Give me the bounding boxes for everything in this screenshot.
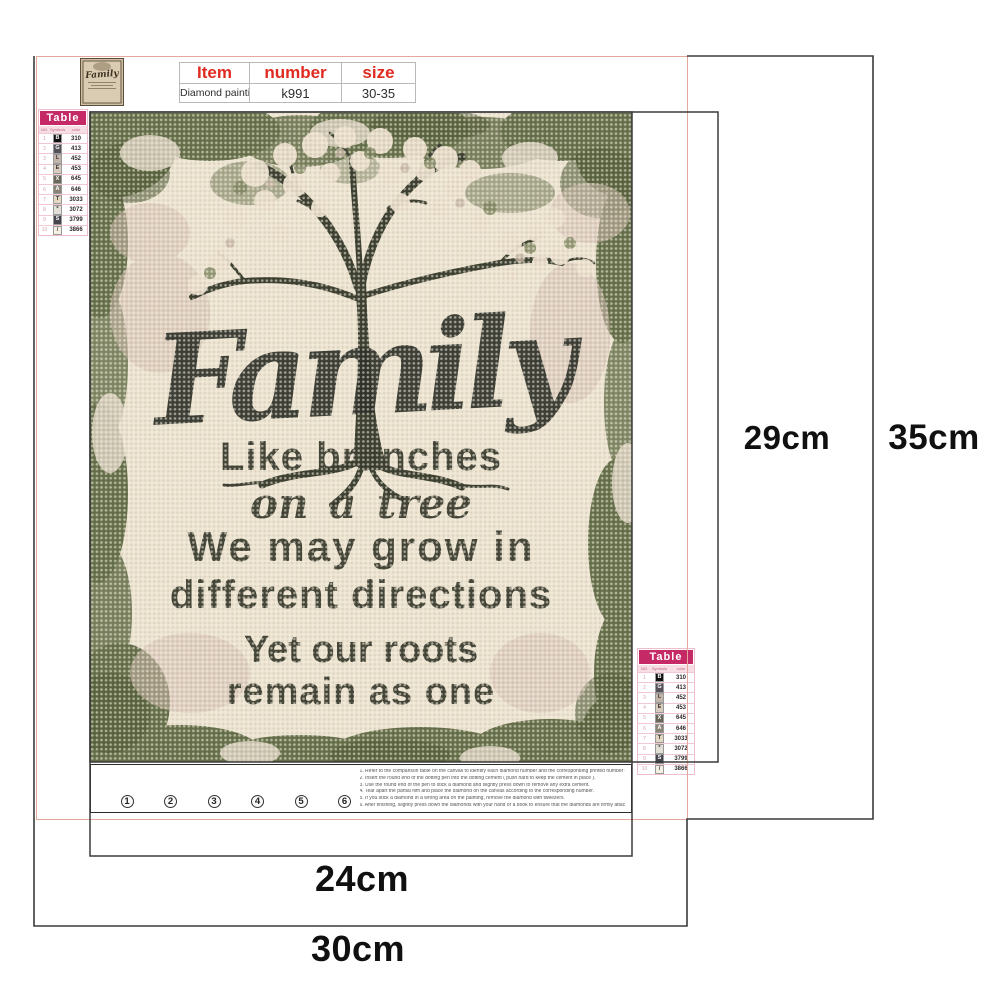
spec-col-item: Item [180, 63, 250, 84]
dmc-code: 310 [65, 136, 87, 142]
col-symbols: Symbols [651, 665, 668, 672]
color-table-right: Table NO. Symbols color 1 B 310 2 G 413 [637, 648, 695, 775]
family-logo-thumbnail: Family [80, 58, 124, 106]
dmc-code: 453 [65, 166, 87, 172]
color-table-row: 3 L 452 [39, 153, 87, 163]
symbol-cell: E [651, 703, 668, 713]
dmc-code: 646 [668, 726, 694, 732]
dmc-code: 645 [65, 176, 87, 182]
row-number: 5 [638, 715, 651, 721]
color-table-row: 8 * 3072 [39, 204, 87, 214]
dmc-code: 3799 [668, 756, 694, 762]
symbol-swatch: / [53, 226, 63, 236]
color-table-row: 2 G 413 [638, 682, 694, 692]
step-photo: 6 [310, 767, 352, 809]
symbol-cell: L [651, 693, 668, 703]
step-photo: 2 [136, 767, 178, 809]
instruction-line: 2. Insert the round end of the dotting p… [360, 776, 626, 781]
color-table-rows: 1 B 310 2 G 413 3 L 452 4 [39, 133, 87, 235]
color-table-row: 3 L 452 [638, 692, 694, 702]
dmc-code: 453 [668, 705, 694, 711]
step-photo: 5 [267, 767, 309, 809]
symbol-swatch: L [53, 154, 63, 164]
symbol-swatch: * [53, 205, 63, 215]
symbol-cell: * [651, 744, 668, 754]
symbol-swatch: A [655, 724, 665, 734]
logo-title: Family [81, 69, 124, 82]
symbol-swatch: X [53, 175, 63, 185]
logo-decor-line [91, 85, 113, 87]
color-table-row: 5 X 645 [39, 174, 87, 184]
color-table-row: 2 G 413 [39, 143, 87, 153]
symbol-swatch: L [655, 693, 665, 703]
row-number: 8 [39, 207, 50, 213]
row-number: 7 [638, 736, 651, 742]
dmc-code: 3072 [65, 207, 87, 213]
row-number: 4 [638, 705, 651, 711]
dmc-code: 646 [65, 187, 87, 193]
step-number-badge: 2 [164, 795, 177, 808]
product-sheet: Family Item number size Diamond painting… [0, 0, 1000, 1000]
symbol-cell: X [651, 714, 668, 724]
dmc-code: 413 [65, 146, 87, 152]
spec-col-number: number [250, 63, 342, 84]
color-table-row: 1 B 310 [638, 672, 694, 682]
instruction-line: 4. Tear apart the partial film and place… [360, 789, 626, 794]
symbol-cell: A [50, 185, 65, 195]
symbol-swatch: X [655, 714, 665, 724]
row-number: 6 [638, 726, 651, 732]
row-number: 2 [39, 146, 50, 152]
outer-width-label: 30cm [298, 928, 418, 970]
canvas-line-3: We may grow in [90, 523, 632, 571]
canvas-title: Family [90, 295, 632, 448]
color-table-row: 5 X 645 [638, 713, 694, 723]
dmc-code: 413 [668, 685, 694, 691]
inner-width-label: 24cm [302, 858, 422, 900]
dmc-code: 452 [65, 156, 87, 162]
symbol-swatch: T [53, 195, 63, 205]
color-table-subheader: NO. Symbols color [638, 665, 694, 672]
symbol-cell: A [651, 724, 668, 734]
row-number: 9 [39, 217, 50, 223]
color-table-subheader: NO. Symbols color [39, 126, 87, 133]
color-table-title: Table [639, 650, 693, 664]
row-number: 6 [39, 187, 50, 193]
canvas-line-2: on a tree [90, 479, 632, 528]
step-number-badge: 6 [338, 795, 351, 808]
dmc-code: 310 [668, 675, 694, 681]
color-table-row: 4 E 453 [39, 164, 87, 174]
col-color: color [65, 126, 87, 133]
symbol-swatch: T [655, 734, 665, 744]
color-table-row: 10 / 3866 [638, 764, 694, 774]
symbol-swatch: B [53, 134, 63, 144]
instruction-line: 3. Use the round end of the pen to stick… [360, 783, 626, 788]
dmc-code: 645 [668, 715, 694, 721]
color-table-rows: 1 B 310 2 G 413 3 L 452 4 [638, 672, 694, 774]
spec-item-value: Diamond painting [180, 84, 250, 103]
canvas-preview: Family Like branches on a tree We may gr… [90, 113, 632, 762]
symbol-cell: E [50, 164, 65, 174]
step-number-badge: 3 [208, 795, 221, 808]
row-number: 8 [638, 746, 651, 752]
canvas-line-5: Yet our roots [90, 629, 632, 672]
step-number-badge: 4 [251, 795, 264, 808]
color-table-row: 10 / 3866 [39, 225, 87, 235]
symbol-cell: T [651, 734, 668, 744]
spec-number-value: k991 [250, 84, 342, 103]
dmc-code: 3866 [65, 227, 87, 233]
symbol-swatch: S [53, 215, 63, 225]
row-number: 9 [638, 756, 651, 762]
instruction-line: 6. After finishing, slightly press down … [360, 803, 626, 808]
step-photos: 1 2 3 4 5 6 [91, 765, 354, 812]
color-table-row: 6 A 646 [638, 723, 694, 733]
color-table-left: Table NO. Symbols color 1 B 310 2 G 413 [38, 109, 88, 236]
color-table-row: 9 S 3799 [39, 215, 87, 225]
row-number: 2 [638, 685, 651, 691]
outer-height-label: 35cm [878, 418, 990, 458]
row-number: 1 [638, 675, 651, 681]
symbol-swatch: A [53, 185, 63, 195]
instruction-line: 5. If you stick a diamond in a wrong are… [360, 796, 626, 801]
symbol-swatch: B [655, 673, 665, 683]
row-number: 4 [39, 166, 50, 172]
symbol-swatch: G [53, 144, 63, 154]
symbol-cell: S [50, 215, 65, 225]
dmc-code: 3033 [668, 736, 694, 742]
step-photo: 4 [223, 767, 265, 809]
col-symbols: Symbols [50, 126, 65, 133]
symbol-cell: / [50, 226, 65, 236]
row-number: 10 [39, 227, 50, 233]
spec-col-size: size [342, 63, 416, 84]
row-number: 3 [638, 695, 651, 701]
col-color: color [668, 665, 694, 672]
symbol-cell: B [651, 673, 668, 683]
step-photo: 1 [93, 767, 135, 809]
symbol-cell: L [50, 154, 65, 164]
dmc-code: 3033 [65, 197, 87, 203]
row-number: 7 [39, 197, 50, 203]
color-table-row: 7 T 3033 [638, 733, 694, 743]
canvas-line-6: remain as one [90, 671, 632, 714]
step-number-badge: 1 [121, 795, 134, 808]
symbol-cell: B [50, 134, 65, 144]
step-photo: 3 [180, 767, 222, 809]
color-table-row: 4 E 453 [638, 703, 694, 713]
symbol-cell: / [651, 765, 668, 775]
col-no: NO. [638, 665, 651, 672]
symbol-swatch: * [655, 744, 665, 754]
spec-table: Item number size Diamond painting k991 3… [179, 62, 416, 103]
color-table-title: Table [40, 111, 86, 125]
row-number: 10 [638, 766, 651, 772]
symbol-swatch: G [655, 683, 665, 693]
color-table-row: 7 T 3033 [39, 194, 87, 204]
row-number: 3 [39, 156, 50, 162]
spec-value-row: Diamond painting k991 30-35 [180, 84, 416, 103]
canvas-line-1: Like branches [90, 435, 632, 480]
row-number: 1 [39, 136, 50, 142]
instruction-strip: 1 2 3 4 5 6 [90, 764, 632, 813]
symbol-cell: S [651, 754, 668, 764]
instruction-text: 1. Refer to the comparison table on the … [354, 765, 632, 812]
symbol-swatch: / [655, 765, 665, 775]
logo-decor-line [88, 82, 116, 84]
color-table-row: 8 * 3072 [638, 743, 694, 753]
color-table-row: 9 S 3799 [638, 754, 694, 764]
symbol-cell: G [651, 683, 668, 693]
logo-decor-line [88, 88, 116, 90]
step-number-badge: 5 [295, 795, 308, 808]
canvas-line-4: different directions [90, 573, 632, 618]
symbol-cell: G [50, 144, 65, 154]
symbol-swatch: E [53, 164, 63, 174]
dmc-code: 3799 [65, 217, 87, 223]
spec-header-row: Item number size [180, 63, 416, 84]
symbol-swatch: S [655, 754, 665, 764]
color-table-row: 1 B 310 [39, 133, 87, 143]
symbol-cell: * [50, 205, 65, 215]
symbol-cell: T [50, 195, 65, 205]
dmc-code: 3072 [668, 746, 694, 752]
symbol-swatch: E [655, 703, 665, 713]
instruction-line: 1. Refer to the comparison table on the … [360, 769, 626, 774]
spec-size-value: 30-35 [342, 84, 416, 103]
col-no: NO. [39, 126, 50, 133]
dmc-code: 3866 [668, 766, 694, 772]
dmc-code: 452 [668, 695, 694, 701]
row-number: 5 [39, 176, 50, 182]
color-table-row: 6 A 646 [39, 184, 87, 194]
symbol-cell: X [50, 175, 65, 185]
inner-height-label: 29cm [732, 419, 842, 457]
